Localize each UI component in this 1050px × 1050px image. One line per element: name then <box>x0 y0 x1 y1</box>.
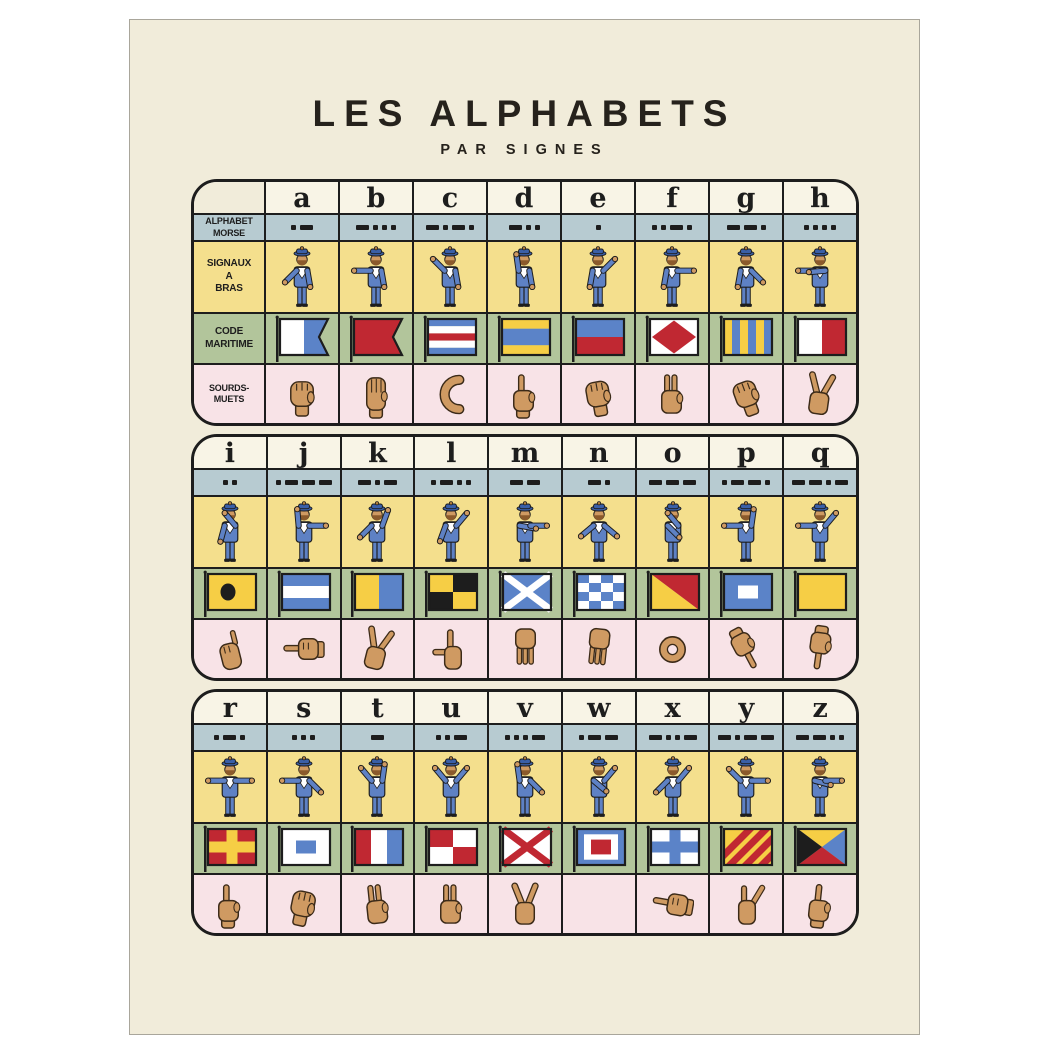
morse-code-e <box>562 213 634 240</box>
maritime-flag-g <box>715 315 777 363</box>
hand-sign-d <box>503 369 546 420</box>
hand-sign-cell-p <box>710 618 782 678</box>
morse-dash <box>796 735 809 740</box>
letter-column-m: m <box>487 437 561 678</box>
hand-sign-cell-i <box>194 618 266 678</box>
maritime-flag-b <box>345 315 407 363</box>
morse-dash <box>670 225 683 230</box>
morse-code-i <box>194 468 266 495</box>
hand-sign-c <box>429 369 472 420</box>
morse-code-x <box>637 723 709 750</box>
morse-dash <box>605 735 618 740</box>
semaphore-cell-r <box>194 750 266 822</box>
morse-dot <box>813 225 818 230</box>
semaphore-figure-w <box>569 753 629 821</box>
hand-sign-u <box>430 879 473 930</box>
semaphore-cell-s <box>268 750 340 822</box>
semaphore-figure-x <box>643 753 703 821</box>
maritime-flag-cell-h <box>784 312 856 363</box>
morse-dash <box>509 225 522 230</box>
hand-sign-cell-s <box>268 873 340 933</box>
semaphore-figure-b <box>346 243 406 311</box>
morse-dot <box>373 225 378 230</box>
maritime-flag-m <box>494 570 556 618</box>
morse-dash <box>835 480 848 485</box>
hand-sign-z <box>799 879 842 930</box>
morse-code-y <box>710 723 782 750</box>
maritime-flag-cell-m <box>489 567 561 618</box>
morse-dot <box>735 735 740 740</box>
morse-code-u <box>415 723 487 750</box>
morse-code-b <box>340 213 412 240</box>
maritime-flag-cell-n <box>563 567 635 618</box>
hand-sign-cell-x <box>637 873 709 933</box>
hand-sign-o <box>651 624 694 675</box>
morse-dot <box>301 735 306 740</box>
letter-cell-n: n <box>563 437 635 468</box>
morse-dash <box>356 225 369 230</box>
hand-sign-f <box>651 369 694 420</box>
letter-column-y: y <box>708 692 782 933</box>
morse-code-c <box>414 213 486 240</box>
morse-dash <box>666 480 679 485</box>
semaphore-cell-j <box>268 495 340 567</box>
morse-code-h <box>784 213 856 240</box>
semaphore-figure-d <box>494 243 554 311</box>
morse-dot <box>661 225 666 230</box>
maritime-flag-cell-t <box>342 822 414 873</box>
morse-dash <box>358 480 371 485</box>
morse-dash <box>684 735 697 740</box>
morse-code-d <box>488 213 560 240</box>
row-label-code-maritime: CODEMARITIME <box>194 312 264 363</box>
alphabet-poster: LES ALPHABETS PAR SIGNES ALPHABET MORSE … <box>129 19 920 1035</box>
semaphore-figure-o <box>643 498 703 566</box>
maritime-flag-v <box>494 825 556 873</box>
morse-code-o <box>637 468 709 495</box>
morse-dot <box>722 480 727 485</box>
letter-column-a: a <box>264 182 338 423</box>
hand-sign-cell-q <box>784 618 856 678</box>
hand-sign-q <box>799 624 842 675</box>
morse-dash <box>384 480 397 485</box>
semaphore-cell-z <box>784 750 856 822</box>
morse-dash <box>761 735 774 740</box>
morse-code-j <box>268 468 340 495</box>
morse-dash <box>748 480 761 485</box>
maritime-flag-cell-w <box>563 822 635 873</box>
hand-sign-k <box>356 624 399 675</box>
semaphore-cell-u <box>415 750 487 822</box>
morse-dot <box>822 225 827 230</box>
morse-dot <box>431 480 436 485</box>
semaphore-figure-g <box>716 243 776 311</box>
letter-cell-m: m <box>489 437 561 468</box>
maritime-flag-p <box>715 570 777 618</box>
letter-cell-l: l <box>415 437 487 468</box>
letter-column-d: d <box>486 182 560 423</box>
morse-dash <box>300 225 313 230</box>
letter-cell-z: z <box>784 692 856 723</box>
semaphore-figure-k <box>347 498 407 566</box>
morse-code-t <box>342 723 414 750</box>
hand-sign-cell-c <box>414 363 486 423</box>
morse-dot <box>526 225 531 230</box>
hand-sign-cell-h <box>784 363 856 423</box>
signal-block-1: ALPHABET MORSE SIGNAUXABRAS CODEMARITIME… <box>191 179 859 426</box>
hand-sign-cell-b <box>340 363 412 423</box>
semaphore-cell-p <box>710 495 782 567</box>
hand-sign-h <box>799 369 842 420</box>
morse-dash <box>223 735 236 740</box>
row-label-sourds-muets: SOURDS-MUETS <box>194 363 264 423</box>
maritime-flag-cell-o <box>637 567 709 618</box>
morse-dash <box>718 735 731 740</box>
letter-column-o: o <box>635 437 709 678</box>
morse-code-r <box>194 723 266 750</box>
morse-code-k <box>342 468 414 495</box>
semaphore-figure-h <box>790 243 850 311</box>
semaphore-cell-q <box>784 495 856 567</box>
morse-dot <box>445 735 450 740</box>
morse-dot <box>457 480 462 485</box>
maritime-flag-n <box>568 570 630 618</box>
letter-column-x: x <box>635 692 709 933</box>
morse-dash <box>649 480 662 485</box>
hand-sign-cell-r <box>194 873 266 933</box>
morse-dot <box>765 480 770 485</box>
semaphore-cell-x <box>637 750 709 822</box>
morse-dot <box>839 735 844 740</box>
morse-dot <box>443 225 448 230</box>
morse-dot <box>223 480 228 485</box>
hand-sign-cell-k <box>342 618 414 678</box>
letter-column-e: e <box>560 182 634 423</box>
maritime-flag-cell-l <box>415 567 487 618</box>
hand-sign-cell-n <box>563 618 635 678</box>
morse-dash <box>302 480 315 485</box>
morse-dash <box>285 480 298 485</box>
poster-header: LES ALPHABETS PAR SIGNES <box>130 93 919 158</box>
semaphore-cell-c <box>414 240 486 312</box>
morse-dash <box>532 735 545 740</box>
maritime-flag-cell-e <box>562 312 634 363</box>
hand-sign-a <box>281 369 324 420</box>
hand-sign-cell-u <box>415 873 487 933</box>
hand-sign-cell-l <box>415 618 487 678</box>
semaphore-figure-p <box>716 498 776 566</box>
morse-dash <box>371 735 384 740</box>
morse-dot <box>596 225 601 230</box>
letter-cell-k: k <box>342 437 414 468</box>
semaphore-cell-f <box>636 240 708 312</box>
letter-column-q: q <box>782 437 856 678</box>
semaphore-cell-i <box>194 495 266 567</box>
maritime-flag-cell-x <box>637 822 709 873</box>
hand-sign-cell-f <box>636 363 708 423</box>
maritime-flag-c <box>419 315 481 363</box>
maritime-flag-u <box>420 825 482 873</box>
semaphore-figure-f <box>642 243 702 311</box>
semaphore-cell-g <box>710 240 782 312</box>
maritime-flag-z <box>789 825 851 873</box>
morse-dot <box>469 225 474 230</box>
morse-dot <box>391 225 396 230</box>
hand-sign-cell-t <box>342 873 414 933</box>
maritime-flag-cell-u <box>415 822 487 873</box>
letter-column-z: z <box>782 692 856 933</box>
maritime-flag-cell-r <box>194 822 266 873</box>
row-label-alphabet-morse: ALPHABET MORSE <box>194 213 264 240</box>
semaphore-cell-b <box>340 240 412 312</box>
maritime-flag-h <box>789 315 851 363</box>
morse-dash <box>744 225 757 230</box>
hand-sign-s <box>282 879 325 930</box>
semaphore-cell-n <box>563 495 635 567</box>
hand-sign-r <box>208 879 251 930</box>
letter-cell-e: e <box>562 182 634 213</box>
letter-cell-j: j <box>268 437 340 468</box>
hand-sign-e <box>577 369 620 420</box>
hand-sign-cell-d <box>488 363 560 423</box>
morse-dot <box>310 735 315 740</box>
hand-sign-cell-v <box>489 873 561 933</box>
morse-dash <box>454 735 467 740</box>
hand-sign-n <box>577 624 620 675</box>
morse-dot <box>514 735 519 740</box>
letter-cell-d: d <box>488 182 560 213</box>
maritime-flag-cell-s <box>268 822 340 873</box>
semaphore-cell-d <box>488 240 560 312</box>
maritime-flag-o <box>642 570 704 618</box>
hand-sign-t <box>356 879 399 930</box>
semaphore-cell-k <box>342 495 414 567</box>
semaphore-figure-a <box>272 243 332 311</box>
semaphore-figure-e <box>568 243 628 311</box>
letter-column-h: h <box>782 182 856 423</box>
hand-sign-m <box>504 624 547 675</box>
hand-sign-x <box>651 879 694 930</box>
morse-dot <box>505 735 510 740</box>
semaphore-figure-t <box>347 753 407 821</box>
hand-sign-v <box>504 879 547 930</box>
hand-sign-i <box>208 624 251 675</box>
hand-sign-cell-m <box>489 618 561 678</box>
semaphore-cell-e <box>562 240 634 312</box>
morse-dot <box>830 735 835 740</box>
maritime-flag-a <box>271 315 333 363</box>
letter-column-v: v <box>487 692 561 933</box>
morse-code-s <box>268 723 340 750</box>
row-label-signaux-a-bras: SIGNAUXABRAS <box>194 240 264 312</box>
letter-cell-t: t <box>342 692 414 723</box>
morse-dot <box>605 480 610 485</box>
morse-dot <box>214 735 219 740</box>
maritime-flag-cell-g <box>710 312 782 363</box>
morse-dash <box>813 735 826 740</box>
morse-dot <box>579 735 584 740</box>
letter-cell-f: f <box>636 182 708 213</box>
semaphore-cell-v <box>489 750 561 822</box>
morse-dot <box>652 225 657 230</box>
maritime-flag-cell-y <box>710 822 782 873</box>
semaphore-figure-m <box>495 498 555 566</box>
semaphore-figure-s <box>274 753 334 821</box>
hand-sign-cell-g <box>710 363 782 423</box>
maritime-flag-cell-d <box>488 312 560 363</box>
maritime-flag-cell-k <box>342 567 414 618</box>
semaphore-figure-n <box>569 498 629 566</box>
maritime-flag-cell-j <box>268 567 340 618</box>
hand-sign-cell-o <box>637 618 709 678</box>
poster-title: LES ALPHABETS <box>130 93 919 135</box>
letter-cell-w: w <box>563 692 635 723</box>
morse-dash <box>809 480 822 485</box>
letter-column-u: u <box>413 692 487 933</box>
maritime-flag-x <box>642 825 704 873</box>
morse-dot <box>291 225 296 230</box>
letter-column-n: n <box>561 437 635 678</box>
letter-cell-h: h <box>784 182 856 213</box>
morse-dot <box>466 480 471 485</box>
semaphore-figure-c <box>420 243 480 311</box>
morse-dot <box>831 225 836 230</box>
morse-dash <box>588 480 601 485</box>
morse-dot <box>675 735 680 740</box>
hand-sign-g <box>725 369 768 420</box>
maritime-flag-s <box>273 825 335 873</box>
letter-column-g: g <box>708 182 782 423</box>
signal-block-3: r s <box>191 689 859 936</box>
maritime-flag-e <box>567 315 629 363</box>
maritime-flag-y <box>715 825 777 873</box>
letter-cell-a: a <box>266 182 338 213</box>
morse-dash <box>683 480 696 485</box>
semaphore-cell-m <box>489 495 561 567</box>
morse-dash <box>588 735 601 740</box>
maritime-flag-d <box>493 315 555 363</box>
row-label-column: ALPHABET MORSE SIGNAUXABRAS CODEMARITIME… <box>194 182 264 423</box>
morse-code-f <box>636 213 708 240</box>
semaphore-cell-y <box>710 750 782 822</box>
semaphore-cell-w <box>563 750 635 822</box>
morse-dash <box>727 225 740 230</box>
letter-column-b: b <box>338 182 412 423</box>
maritime-flag-q <box>789 570 851 618</box>
poster-photo-frame: LES ALPHABETS PAR SIGNES ALPHABET MORSE … <box>0 0 1050 1050</box>
maritime-flag-w <box>568 825 630 873</box>
letter-cell-y: y <box>710 692 782 723</box>
maritime-flag-t <box>346 825 408 873</box>
morse-dot <box>523 735 528 740</box>
poster-subtitle: PAR SIGNES <box>130 142 919 158</box>
semaphore-figure-l <box>421 498 481 566</box>
letter-column-k: k <box>340 437 414 678</box>
letter-cell-x: x <box>637 692 709 723</box>
semaphore-figure-i <box>200 498 260 566</box>
maritime-flag-f <box>641 315 703 363</box>
morse-code-w <box>563 723 635 750</box>
morse-code-a <box>266 213 338 240</box>
morse-dot <box>436 735 441 740</box>
hand-sign-cell-a <box>266 363 338 423</box>
maritime-flag-cell-a <box>266 312 338 363</box>
morse-dot <box>375 480 380 485</box>
maritime-flag-cell-v <box>489 822 561 873</box>
morse-dash <box>744 735 757 740</box>
semaphore-figure-q <box>790 498 850 566</box>
maritime-flag-j <box>273 570 335 618</box>
semaphore-figure-r <box>200 753 260 821</box>
semaphore-figure-j <box>274 498 334 566</box>
morse-code-g <box>710 213 782 240</box>
letter-column-w: w <box>561 692 635 933</box>
maritime-flag-cell-q <box>784 567 856 618</box>
morse-dot <box>292 735 297 740</box>
morse-dash <box>731 480 744 485</box>
morse-dot <box>666 735 671 740</box>
morse-dash <box>319 480 332 485</box>
semaphore-figure-z <box>790 753 850 821</box>
letter-cell-s: s <box>268 692 340 723</box>
hand-sign-cell-e <box>562 363 634 423</box>
morse-code-v <box>489 723 561 750</box>
semaphore-figure-u <box>421 753 481 821</box>
morse-dash <box>426 225 439 230</box>
letter-column-l: l <box>413 437 487 678</box>
maritime-flag-cell-p <box>710 567 782 618</box>
hand-sign-cell-j <box>268 618 340 678</box>
hand-sign-b <box>355 369 398 420</box>
letter-cell-o: o <box>637 437 709 468</box>
letter-column-f: f <box>634 182 708 423</box>
semaphore-figure-v <box>495 753 555 821</box>
morse-dash <box>452 225 465 230</box>
semaphore-cell-o <box>637 495 709 567</box>
maritime-flag-l <box>420 570 482 618</box>
label-corner-cell <box>194 182 264 213</box>
letter-column-j: j <box>266 437 340 678</box>
semaphore-figure-y <box>716 753 776 821</box>
morse-code-p <box>710 468 782 495</box>
morse-dot <box>535 225 540 230</box>
letter-cell-g: g <box>710 182 782 213</box>
hand-sign-p <box>725 624 768 675</box>
hand-sign-y <box>725 879 768 930</box>
morse-code-n <box>563 468 635 495</box>
maritime-flag-cell-f <box>636 312 708 363</box>
letter-column-s: s <box>266 692 340 933</box>
letter-column-c: c <box>412 182 486 423</box>
morse-dot <box>382 225 387 230</box>
morse-dot <box>687 225 692 230</box>
hand-sign-cell-z <box>784 873 856 933</box>
morse-dot <box>826 480 831 485</box>
signal-block-2: i j <box>191 434 859 681</box>
maritime-flag-i <box>199 570 261 618</box>
morse-dash <box>440 480 453 485</box>
maritime-flag-cell-c <box>414 312 486 363</box>
letter-column-r: r <box>194 692 266 933</box>
morse-dash <box>792 480 805 485</box>
hand-sign-cell-w <box>563 873 635 933</box>
maritime-flag-cell-b <box>340 312 412 363</box>
semaphore-cell-t <box>342 750 414 822</box>
maritime-flag-k <box>346 570 408 618</box>
letter-cell-b: b <box>340 182 412 213</box>
morse-dot <box>276 480 281 485</box>
letter-column-t: t <box>340 692 414 933</box>
